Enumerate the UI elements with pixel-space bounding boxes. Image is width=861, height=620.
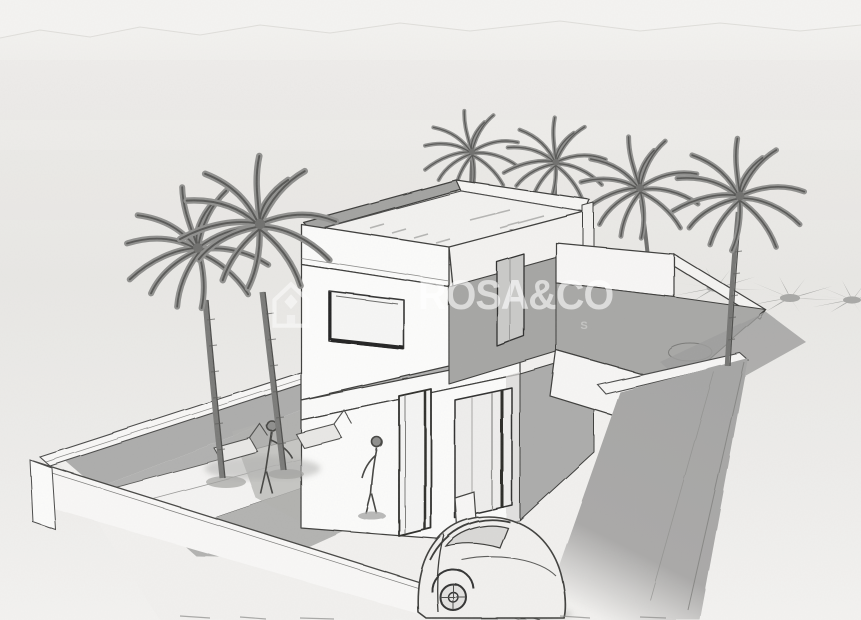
sketch-image: ROSA&CO S [0,0,861,620]
paper-texture [0,0,861,620]
villa-sketch-scene [0,0,861,620]
